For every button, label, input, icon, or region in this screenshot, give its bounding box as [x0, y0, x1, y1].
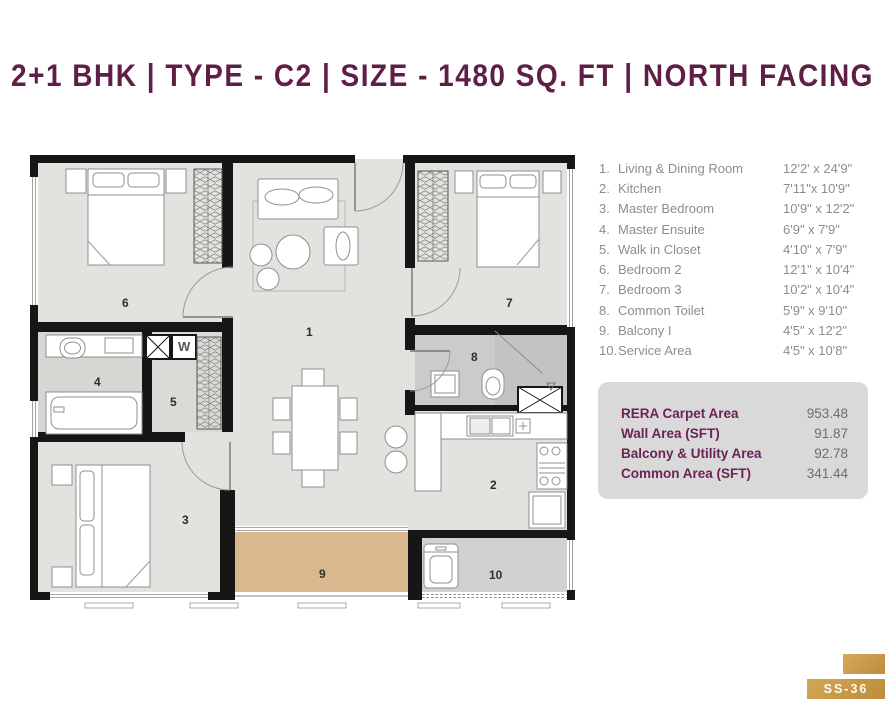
legend-dimension: 10'9" x 12'2" — [783, 201, 869, 216]
summary-row: RERA Carpet Area 953.48 — [621, 403, 848, 423]
page-title: 2+1 BHK | TYPE - C2 | SIZE - 1480 SQ. FT… — [0, 58, 885, 94]
room-label-master: 3 — [182, 513, 189, 527]
floor-plan-svg: W — [30, 155, 575, 610]
legend-num: 2. — [599, 181, 618, 196]
legend-item: 3. Master Bedroom 10'9" x 12'2" — [599, 199, 869, 219]
summary-label: Wall Area (SFT) — [621, 426, 720, 441]
legend-item: 7. Bedroom 3 10'2" x 10'4" — [599, 280, 869, 300]
legend-dimension: 4'10" x 7'9" — [783, 242, 869, 257]
room-label-service: 10 — [489, 568, 503, 582]
room-label-ensuite: 4 — [94, 375, 101, 389]
flyer-page: 2+1 BHK | TYPE - C2 | SIZE - 1480 SQ. FT… — [0, 0, 885, 701]
legend-label: Master Bedroom — [618, 201, 783, 216]
water-meter-label: W — [178, 339, 191, 354]
area-summary-box: RERA Carpet Area 953.48 Wall Area (SFT) … — [598, 382, 868, 499]
room-label-balcony: 9 — [319, 567, 326, 581]
legend-item: 1. Living & Dining Room 12'2' x 24'9" — [599, 158, 869, 178]
legend-num: 8. — [599, 303, 618, 318]
legend-item: 9. Balcony I 4'5" x 12'2" — [599, 320, 869, 340]
legend-item: 4. Master Ensuite 6'9" x 7'9" — [599, 219, 869, 239]
legend-dimension: 5'9" x 9'10" — [783, 303, 869, 318]
legend-dimension: 6'9" x 7'9" — [783, 222, 869, 237]
summary-row: Wall Area (SFT) 91.87 — [621, 423, 848, 443]
legend-label: Kitchen — [618, 181, 783, 196]
room-label-living: 1 — [306, 325, 313, 339]
legend-item: 5. Walk in Closet 4'10" x 7'9" — [599, 239, 869, 259]
room-label-bedroom3: 7 — [506, 296, 513, 310]
room-label-bedroom2: 6 — [122, 296, 129, 310]
legend-num: 6. — [599, 262, 618, 277]
legend-num: 5. — [599, 242, 618, 257]
legend-item: 2. Kitchen 7'11"x 10'9" — [599, 178, 869, 198]
summary-label: Common Area (SFT) — [621, 466, 751, 481]
room-legend: 1. Living & Dining Room 12'2' x 24'9" 2.… — [599, 158, 869, 361]
legend-dimension: 4'5" x 10'8" — [783, 343, 869, 358]
legend-dimension: 12'2' x 24'9" — [783, 161, 869, 176]
summary-value: 341.44 — [807, 466, 848, 481]
legend-label: Master Ensuite — [618, 222, 783, 237]
legend-item: 8. Common Toilet 5'9" x 9'10" — [599, 300, 869, 320]
legend-dimension: 12'1" x 10'4" — [783, 262, 869, 277]
legend-item: 6. Bedroom 2 12'1" x 10'4" — [599, 259, 869, 279]
room-label-toilet: 8 — [471, 350, 478, 364]
legend-dimension: 10'2" x 10'4" — [783, 282, 869, 297]
summary-value: 92.78 — [814, 446, 848, 461]
summary-row: Balcony & Utility Area 92.78 — [621, 443, 848, 463]
gold-corner-decoration — [843, 654, 885, 674]
legend-label: Bedroom 2 — [618, 262, 783, 277]
unit-code-badge: SS-36 — [807, 679, 885, 699]
legend-num: 4. — [599, 222, 618, 237]
summary-row: Common Area (SFT) 341.44 — [621, 463, 848, 483]
summary-value: 953.48 — [807, 406, 848, 421]
legend-dimension: 7'11"x 10'9" — [783, 181, 869, 196]
legend-item: 10. Service Area 4'5" x 10'8" — [599, 341, 869, 361]
legend-num: 7. — [599, 282, 618, 297]
legend-num: 3. — [599, 201, 618, 216]
legend-label: Balcony I — [618, 323, 783, 338]
legend-num: 9. — [599, 323, 618, 338]
summary-value: 91.87 — [814, 426, 848, 441]
legend-label: Bedroom 3 — [618, 282, 783, 297]
washing-machine — [424, 544, 458, 588]
room-label-closet: 5 — [170, 395, 177, 409]
legend-num: 1. — [599, 161, 618, 176]
summary-label: Balcony & Utility Area — [621, 446, 762, 461]
room-label-kitchen: 2 — [490, 478, 497, 492]
legend-label: Service Area — [618, 343, 783, 358]
legend-label: Walk in Closet — [618, 242, 783, 257]
floor-plan: W — [30, 155, 575, 610]
legend-dimension: 4'5" x 12'2" — [783, 323, 869, 338]
legend-label: Common Toilet — [618, 303, 783, 318]
legend-num: 10. — [599, 343, 618, 358]
legend-label: Living & Dining Room — [618, 161, 783, 176]
summary-label: RERA Carpet Area — [621, 406, 739, 421]
